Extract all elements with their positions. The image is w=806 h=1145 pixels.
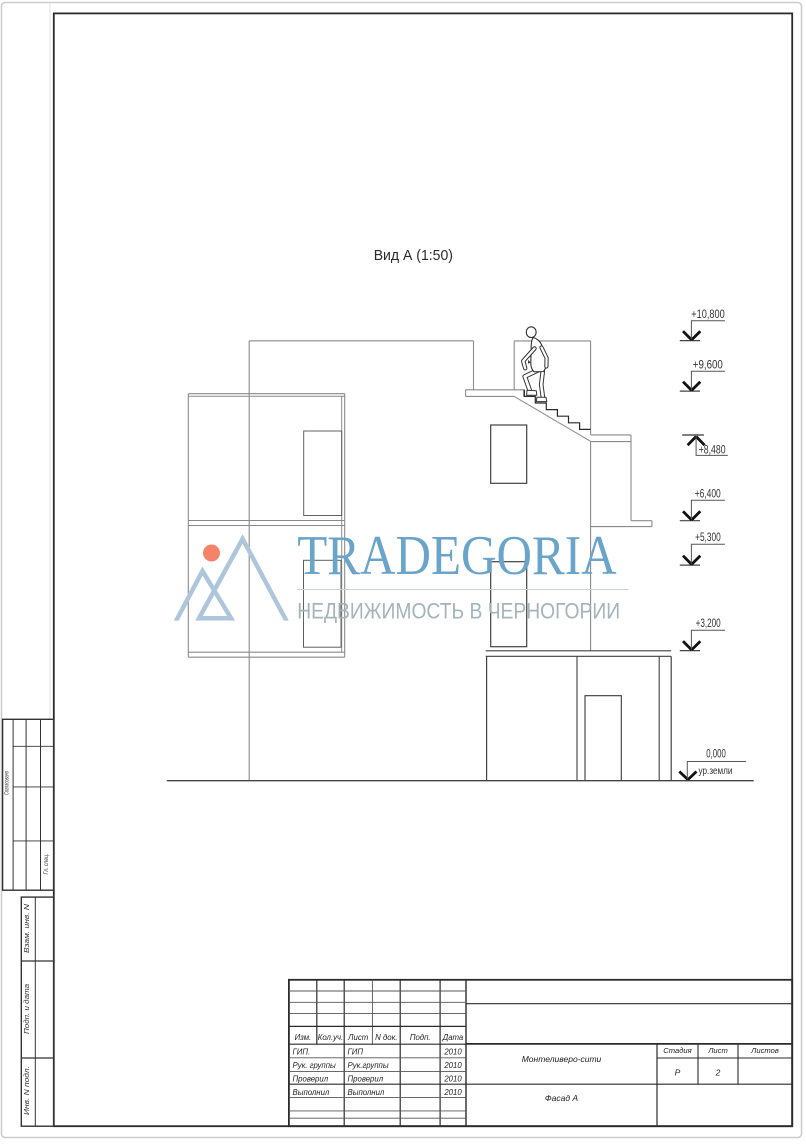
svg-text:Вид А (1:50): Вид А (1:50) xyxy=(374,247,453,264)
svg-text:Рук.группы: Рук.группы xyxy=(348,1061,389,1070)
svg-text:Подп. и дата: Подп. и дата xyxy=(23,984,31,1034)
svg-text:+6,400: +6,400 xyxy=(695,486,721,500)
svg-text:Р: Р xyxy=(675,1068,681,1078)
svg-text:ур.земли: ур.земли xyxy=(699,766,733,777)
svg-text:2010: 2010 xyxy=(443,1061,462,1070)
svg-text:N док.: N док. xyxy=(375,1033,397,1042)
svg-text:Гл. спец.: Гл. спец. xyxy=(44,854,50,875)
svg-text:+10,800: +10,800 xyxy=(691,307,724,321)
svg-text:+8,480: +8,480 xyxy=(699,442,726,456)
svg-text:0,000: 0,000 xyxy=(706,747,726,761)
svg-text:Инв. N подл.: Инв. N подл. xyxy=(23,1066,31,1115)
svg-text:Стадия: Стадия xyxy=(663,1046,691,1055)
svg-text:ГИП: ГИП xyxy=(348,1048,364,1057)
svg-text:Лист: Лист xyxy=(707,1046,728,1055)
svg-text:Согласовано: Согласовано xyxy=(5,771,11,795)
svg-text:Проверил: Проверил xyxy=(293,1075,329,1084)
svg-text:Монтеливеро-сити: Монтеливеро-сити xyxy=(522,1054,602,1064)
svg-text:Подп.: Подп. xyxy=(410,1033,431,1042)
svg-text:Взам. инв. N: Взам. инв. N xyxy=(24,903,31,953)
svg-text:Лист: Лист xyxy=(347,1033,369,1042)
svg-text:Фасад А: Фасад А xyxy=(545,1093,579,1103)
svg-text:Листов: Листов xyxy=(750,1046,779,1055)
svg-text:+5,300: +5,300 xyxy=(695,530,721,544)
svg-text:Проверил: Проверил xyxy=(348,1075,384,1084)
svg-text:+3,200: +3,200 xyxy=(696,616,721,630)
svg-text:TRADEGORIA: TRADEGORIA xyxy=(297,525,617,587)
svg-text:НЕДВИЖИМОСТЬ В ЧЕРНОГОРИИ: НЕДВИЖИМОСТЬ В ЧЕРНОГОРИИ xyxy=(297,599,620,624)
svg-text:Изм.: Изм. xyxy=(295,1033,312,1042)
svg-text:Рук. группы: Рук. группы xyxy=(293,1061,337,1070)
svg-text:Дата: Дата xyxy=(442,1033,464,1042)
svg-text:2: 2 xyxy=(715,1068,721,1078)
svg-text:Кол.уч.: Кол.уч. xyxy=(318,1033,343,1042)
svg-text:2010: 2010 xyxy=(443,1048,462,1057)
svg-text:Выполнил: Выполнил xyxy=(348,1088,385,1097)
svg-text:Выполнил: Выполнил xyxy=(293,1088,330,1097)
svg-text:ГИП.: ГИП. xyxy=(293,1048,311,1057)
svg-text:2010: 2010 xyxy=(443,1075,462,1084)
svg-text:+9,600: +9,600 xyxy=(693,358,723,372)
svg-text:2010: 2010 xyxy=(443,1088,462,1097)
